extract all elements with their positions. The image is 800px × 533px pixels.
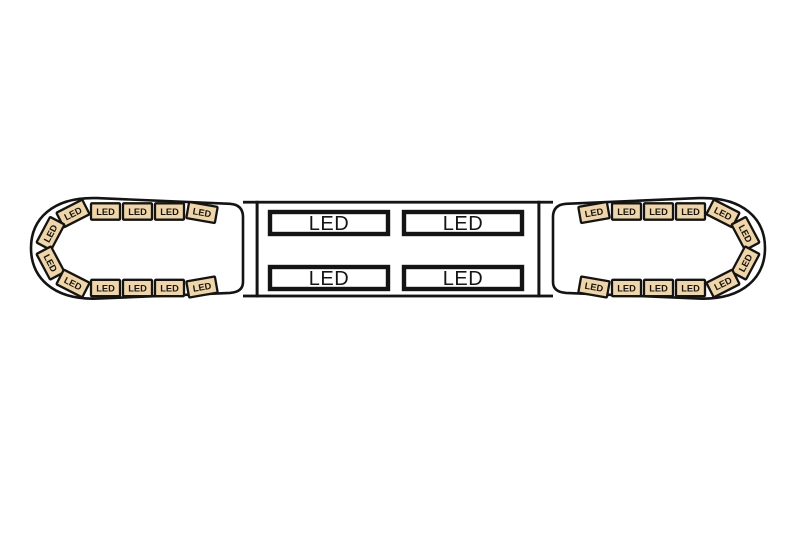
led-module-label: LED [617,283,636,293]
center-led-panel-label: LED [443,213,483,235]
led-module: LED [155,280,184,296]
led-module: LED [186,202,217,223]
led-module: LED [186,276,217,297]
led-module-label: LED [681,207,700,217]
center-led-panel-label: LED [309,213,349,235]
led-module-label: LED [160,207,179,217]
led-module-label: LED [617,207,636,217]
led-module: LED [91,203,120,219]
led-module: LED [578,276,609,297]
bar-bottom-edge [243,295,553,298]
led-module: LED [91,280,120,296]
center-section: LED LED LED LED [243,201,553,298]
bar-top-edge [243,201,553,204]
led-module: LED [676,203,705,219]
center-led-panel-label: LED [443,268,483,290]
led-module-label: LED [128,283,147,293]
led-module-label: LED [96,207,115,217]
led-module-label: LED [160,283,179,293]
lightbar-diagram: LED LED LED LED LED LED LED [0,0,800,533]
center-led-panel-top-left: LED [270,212,388,235]
center-led-panel-bottom-left: LED [270,267,388,290]
led-module-label: LED [649,283,668,293]
right-end-cap: LED LED LED LED LED LED LED LED [553,198,765,299]
led-module-label: LED [649,207,668,217]
center-led-panel-bottom-right: LED [404,267,522,290]
led-module: LED [123,203,152,219]
led-module: LED [612,280,641,296]
led-module: LED [676,280,705,296]
center-led-panel-label: LED [309,268,349,290]
left-end-cap: LED LED LED LED LED LED LED LED [31,198,243,299]
led-module-label: LED [96,283,115,293]
led-module: LED [612,203,641,219]
led-module: LED [644,280,673,296]
left-divider-line [256,201,259,298]
led-module-label: LED [681,283,700,293]
right-divider-line [537,201,540,298]
center-led-panel-top-right: LED [404,212,522,235]
led-module: LED [123,280,152,296]
led-module: LED [155,203,184,219]
led-module-label: LED [128,207,147,217]
lightbar-illustration: LED LED LED LED LED LED LED [0,0,800,533]
led-module: LED [578,202,609,223]
led-module: LED [644,203,673,219]
